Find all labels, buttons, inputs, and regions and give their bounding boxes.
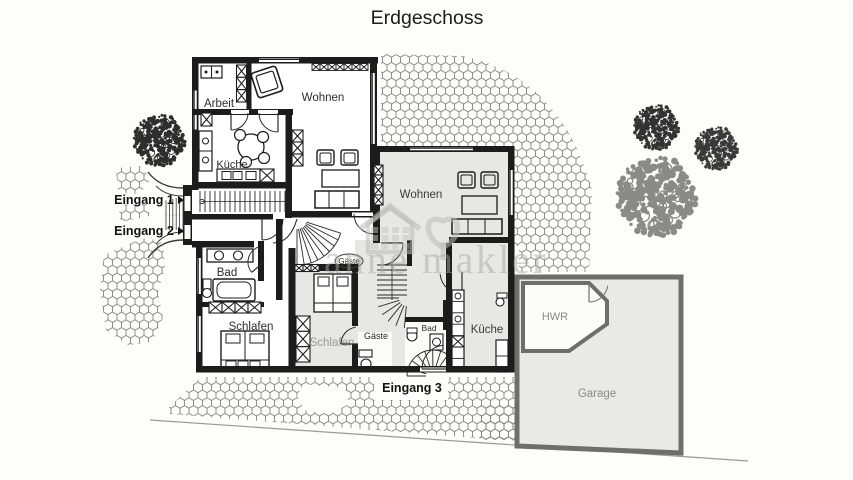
svg-text:Eingang 1: Eingang 1 [114, 193, 174, 207]
svg-text:Bad: Bad [217, 267, 237, 279]
svg-text:Wohnen: Wohnen [302, 92, 345, 104]
svg-text:Bad: Bad [421, 323, 436, 333]
svg-text:Wohnen: Wohnen [400, 189, 443, 201]
svg-text:Gäste: Gäste [364, 331, 388, 341]
svg-text:HWR: HWR [542, 311, 568, 323]
svg-text:Garage: Garage [578, 388, 616, 400]
svg-text:Eingang 2: Eingang 2 [114, 224, 174, 238]
svg-text:Schlafen: Schlafen [310, 337, 355, 349]
svg-text:Erdgeschoss: Erdgeschoss [371, 7, 484, 29]
svg-text:Küche: Küche [471, 324, 504, 336]
svg-text:Arbeit: Arbeit [204, 98, 235, 110]
svg-text:Küche: Küche [216, 159, 247, 171]
svg-text:Eingang 3: Eingang 3 [382, 381, 442, 395]
svg-text:anne makler: anne makler [324, 237, 548, 282]
